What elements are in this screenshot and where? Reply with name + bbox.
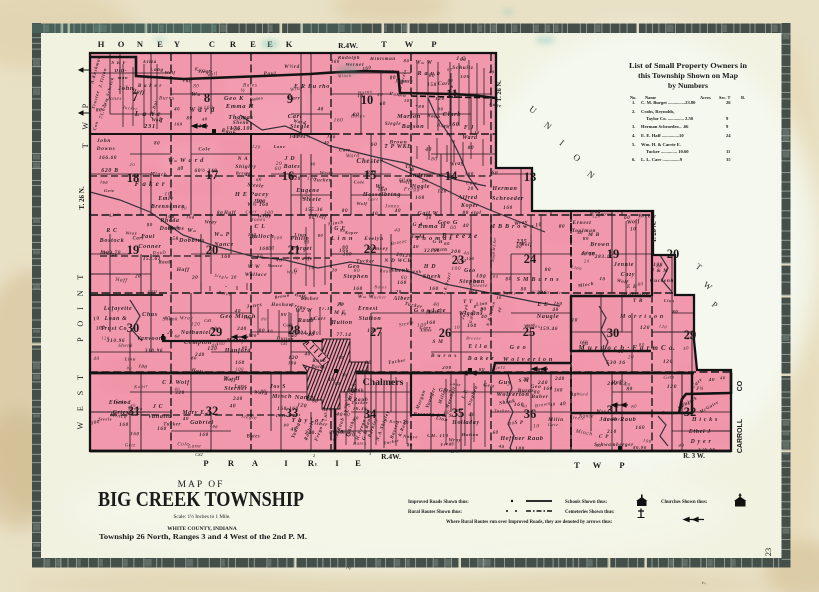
svg-text:40: 40	[462, 223, 470, 229]
svg-text:160 160: 160 160	[277, 406, 298, 412]
svg-text:Dill-: Dill-	[114, 69, 128, 74]
svg-text:180: 180	[515, 446, 525, 452]
svg-text:Carr: Carr	[245, 210, 257, 215]
svg-text:Ernest: Ernest	[572, 220, 592, 226]
svg-text:*80: *80	[415, 105, 424, 110]
svg-text:Mary E.A.: Mary E.A.	[181, 410, 213, 416]
svg-text:80: 80	[261, 317, 267, 322]
svg-text:T: T	[574, 460, 580, 470]
svg-text:23: 23	[763, 548, 773, 557]
svg-text:Raub: Raub	[167, 225, 180, 231]
svg-text:Burns: Burns	[159, 95, 175, 101]
svg-text:80: 80	[147, 75, 153, 80]
svg-text:160: 160	[244, 315, 253, 321]
svg-text:100: 100	[96, 325, 106, 332]
svg-text:Linn: Linn	[293, 233, 306, 238]
svg-text:120: 120	[595, 293, 604, 298]
svg-text:C#2: C#2	[195, 452, 203, 457]
svg-text:30: 30	[607, 326, 620, 340]
svg-text:N: N	[137, 39, 144, 49]
svg-text:80: 80	[193, 84, 199, 89]
svg-text:Y: Y	[174, 39, 180, 49]
svg-text:60: 60	[174, 333, 180, 338]
svg-text:Rudolph: Rudolph	[338, 56, 360, 61]
svg-text:Cole: Cole	[283, 323, 293, 328]
svg-text:Shigley: Shigley	[235, 164, 256, 170]
svg-text:60: 60	[242, 345, 248, 350]
svg-text:W o l v e r t o n: W o l v e r t o n	[503, 357, 553, 363]
svg-text:240.: 240.	[304, 430, 317, 436]
svg-text:Wallace: Wallace	[245, 272, 267, 278]
svg-text:80: 80	[211, 326, 217, 332]
svg-text:K: K	[286, 39, 293, 49]
svg-text:20: 20	[230, 275, 237, 280]
svg-text:231: 231	[143, 123, 156, 130]
svg-text:P: P	[619, 460, 624, 470]
svg-text:Jones: Jones	[395, 79, 410, 85]
svg-text:80: 80	[480, 307, 486, 312]
svg-text:10: 10	[474, 130, 480, 135]
svg-text:160: 160	[199, 432, 209, 438]
svg-text:this Township Shown on Map: this Township Shown on Map	[638, 71, 738, 80]
svg-text:10: 10	[181, 206, 187, 211]
svg-text:166.60: 166.60	[99, 155, 117, 161]
svg-text:40: 40	[412, 245, 419, 250]
svg-text:Statton: Statton	[359, 316, 382, 322]
svg-text:E. E. Haff ...............10: E. E. Haff ...............10	[641, 133, 684, 138]
svg-text:200: 200	[366, 170, 377, 176]
svg-text:Eugene: Eugene	[295, 188, 320, 194]
svg-text:80: 80	[281, 313, 287, 318]
svg-text:20: 20	[425, 215, 432, 220]
svg-text:Getz: Getz	[125, 444, 136, 449]
svg-text:283.16: 283.16	[594, 254, 613, 260]
svg-text:Tucker .............. 10.60: Tucker .............. 10.60	[646, 149, 689, 154]
svg-text:R: R	[228, 458, 235, 468]
svg-text:Getz: Getz	[104, 188, 114, 193]
svg-text:40: 40	[677, 444, 684, 449]
svg-text:80: 80	[284, 422, 290, 427]
svg-text:40: 40	[93, 356, 99, 362]
svg-text:120: 120	[191, 322, 201, 328]
svg-text:40: 40	[182, 417, 189, 422]
svg-text:20: 20	[336, 428, 344, 435]
svg-text:20: 20	[331, 267, 338, 272]
svg-text:Jones: Jones	[251, 218, 265, 223]
svg-text:Minch: Minch	[271, 394, 292, 400]
svg-text:Fregg: Fregg	[403, 187, 420, 193]
svg-text:Getz: Getz	[663, 375, 675, 381]
svg-text:120: 120	[454, 408, 462, 413]
svg-text:Wm W a r d: Wm W a r d	[168, 157, 204, 164]
svg-text:20: 20	[467, 187, 474, 192]
svg-text:Carr: Carr	[314, 316, 327, 322]
svg-text:160: 160	[554, 388, 563, 393]
svg-text:530 16: 530 16	[606, 360, 626, 366]
svg-text:6.: 6.	[632, 157, 635, 162]
svg-text:20: 20	[191, 275, 199, 281]
svg-text:160: 160	[353, 286, 363, 292]
svg-text:C#2: C#2	[582, 341, 589, 346]
svg-text:24: 24	[726, 133, 731, 138]
svg-text:80: 80	[404, 58, 410, 63]
svg-text:10: 10	[309, 265, 315, 270]
svg-text:10: 10	[328, 377, 334, 383]
svg-text:60: 60	[399, 177, 406, 184]
svg-text:C P: C P	[599, 434, 609, 440]
svg-text:Raub: Raub	[379, 268, 392, 273]
svg-text:160: 160	[468, 290, 478, 296]
svg-text:60: 60	[491, 170, 499, 177]
svg-text:Haff: Haff	[223, 210, 237, 216]
svg-text:Breeze: Breeze	[637, 213, 656, 219]
svg-text:T. 26 N.: T. 26 N.	[496, 80, 503, 102]
svg-text:Batson: Batson	[401, 123, 425, 130]
svg-text:80: 80	[339, 355, 345, 360]
svg-text:20: 20	[395, 291, 402, 296]
svg-text:P O I N T: P O I N T	[76, 270, 85, 342]
svg-text:R. 3 W.: R. 3 W.	[683, 452, 705, 460]
svg-text:40: 40	[304, 353, 311, 358]
svg-text:40: 40	[371, 211, 379, 217]
svg-text:Bates: Bates	[283, 164, 301, 170]
svg-text:10: 10	[353, 415, 359, 420]
svg-text:100: 100	[386, 69, 395, 74]
svg-text:E: E	[355, 458, 361, 468]
svg-text:B a k e r: B a k e r	[467, 356, 495, 362]
svg-text:60: 60	[379, 101, 386, 108]
svg-text:100: 100	[264, 211, 273, 216]
svg-text:C: C	[209, 39, 215, 49]
svg-text:H E Pacey: H E Pacey	[234, 191, 269, 198]
svg-text:Brennemen: Brennemen	[150, 204, 185, 210]
svg-text:Bostock: Bostock	[99, 238, 125, 244]
svg-text:160: 160	[174, 122, 183, 127]
svg-text:10: 10	[404, 98, 410, 103]
svg-text:80: 80	[493, 274, 499, 279]
svg-text:13: 13	[524, 170, 537, 184]
svg-text:Lane: Lane	[273, 144, 286, 149]
svg-text:Breeze: Breeze	[235, 171, 251, 176]
svg-text:Wm: Wm	[191, 91, 201, 98]
svg-text:Brown: Brown	[128, 406, 142, 411]
svg-text:80: 80	[154, 142, 160, 147]
svg-text:10: 10	[409, 167, 415, 172]
svg-text:24: 24	[524, 252, 537, 266]
svg-text:10: 10	[268, 328, 274, 333]
svg-text:160: 160	[130, 432, 139, 437]
svg-text:M o r r i s o n: M o r r i s o n	[619, 314, 664, 320]
svg-text:Clark: Clark	[443, 111, 462, 118]
svg-text:Loan &: Loan &	[104, 316, 128, 322]
svg-text:Raub: Raub	[312, 358, 326, 364]
svg-text:40: 40	[424, 147, 432, 154]
svg-text:100: 100	[343, 253, 352, 258]
svg-text:W: W	[405, 39, 414, 49]
svg-text:B r e e z e: B r e e z e	[441, 232, 478, 240]
svg-text:80: 80	[438, 107, 444, 112]
svg-text:Brown: Brown	[295, 331, 312, 337]
svg-text:S M: S M	[432, 339, 443, 345]
svg-text:160: 160	[429, 286, 439, 292]
svg-text:½ wife: ½ wife	[295, 255, 313, 262]
svg-text:Steele: Steele	[98, 416, 112, 421]
svg-text:E l l a: E l l a	[467, 344, 487, 350]
svg-text:40: 40	[201, 116, 208, 122]
svg-text:120: 120	[667, 384, 677, 390]
svg-text:Breeze: Breeze	[413, 412, 432, 418]
svg-text:Tucker: Tucker	[371, 294, 387, 299]
svg-text:Tucker: Tucker	[356, 258, 375, 264]
svg-text:Schools Shown thus:: Schools Shown thus:	[565, 500, 608, 505]
svg-text:10: 10	[342, 372, 348, 377]
svg-text:80: 80	[353, 112, 360, 118]
svg-text:Tucker: Tucker	[351, 400, 368, 405]
svg-text:80: 80	[342, 245, 349, 251]
svg-text:80: 80	[631, 404, 638, 410]
svg-text:R.4W.: R.4W.	[338, 41, 358, 50]
svg-text:C. M. Burget ...............23: C. M. Burget ...............23.80	[641, 100, 696, 105]
svg-text:120: 120	[301, 195, 310, 201]
svg-text:CARROLL: CARROLL	[737, 418, 744, 453]
svg-text:20: 20	[336, 303, 343, 308]
svg-text:man: man	[118, 75, 129, 80]
svg-text:160: 160	[119, 422, 129, 428]
svg-text:Chas: Chas	[142, 312, 158, 318]
svg-text:by Numbers: by Numbers	[668, 81, 708, 90]
svg-text:40: 40	[468, 412, 476, 418]
svg-text:W: W	[593, 460, 602, 470]
svg-text:Wray: Wray	[320, 171, 334, 177]
svg-text:80: 80	[468, 145, 475, 151]
svg-text:Shenk: Shenk	[118, 344, 133, 349]
svg-text:60½ 240: 60½ 240	[195, 167, 218, 174]
svg-text:Getz: Getz	[548, 422, 559, 427]
svg-text:Jos S: Jos S	[269, 384, 286, 390]
svg-text:Tucker: Tucker	[494, 408, 510, 413]
svg-text:Koper: Koper	[133, 383, 149, 389]
svg-text:B a k e r: B a k e r	[137, 83, 162, 89]
svg-text:20: 20	[451, 91, 458, 96]
svg-text:2.: 2.	[632, 109, 635, 114]
svg-text:160: 160	[543, 386, 553, 392]
svg-text:Wolf: Wolf	[287, 269, 298, 274]
svg-text:80: 80	[342, 208, 349, 214]
svg-text:Fregg: Fregg	[227, 126, 241, 131]
svg-text:80 etal: 80 etal	[463, 210, 482, 216]
svg-text:Schultz: Schultz	[452, 65, 474, 71]
svg-text:G A: G A	[413, 222, 424, 228]
svg-text:Hutton: Hutton	[330, 320, 352, 326]
svg-text:Naugle: Naugle	[536, 314, 559, 320]
svg-text:160: 160	[186, 214, 195, 220]
svg-text:100: 100	[653, 262, 663, 268]
svg-text:Linn: Linn	[663, 298, 675, 304]
svg-text:40: 40	[596, 444, 602, 449]
svg-text:Wolf: Wolf	[165, 70, 176, 75]
svg-text:Lafayette: Lafayette	[103, 306, 133, 312]
svg-text:Hutton: Hutton	[461, 432, 479, 437]
svg-text:80: 80	[191, 356, 197, 361]
svg-text:60: 60	[444, 410, 451, 417]
svg-text:Toolman: Toolman	[572, 228, 596, 234]
svg-text:P: P	[431, 39, 436, 49]
svg-text:158: 158	[427, 82, 437, 88]
svg-text:L a n e: L a n e	[134, 109, 162, 118]
svg-text:Ward: Ward	[346, 153, 360, 159]
svg-text:Linn: Linn	[124, 357, 136, 362]
svg-text:159.46: 159.46	[540, 326, 558, 332]
svg-text:40: 40	[488, 69, 495, 74]
svg-text:Vanatta: Vanatta	[148, 414, 172, 420]
svg-text:Bates: Bates	[243, 83, 258, 89]
svg-text:40: 40	[229, 403, 237, 409]
svg-text:160: 160	[465, 172, 474, 177]
svg-text:40: 40	[480, 314, 487, 320]
svg-text:R.4W.: R.4W.	[381, 452, 401, 461]
svg-text:Hoshaw: Hoshaw	[270, 302, 292, 308]
svg-text:1.: 1.	[632, 100, 635, 105]
svg-text:80: 80	[261, 389, 267, 394]
svg-text:80.90: 80.90	[633, 445, 647, 450]
svg-text:120: 120	[288, 355, 298, 361]
svg-text:F a k e r: F a k e r	[135, 180, 166, 188]
svg-text:T. 26 N.: T. 26 N.	[78, 186, 86, 209]
svg-text:Evelyn: Evelyn	[363, 236, 383, 242]
svg-text:80: 80	[516, 245, 522, 250]
svg-text:Shenk: Shenk	[407, 268, 422, 274]
svg-text:200: 200	[450, 249, 461, 255]
svg-text:Holladay: Holladay	[451, 420, 480, 426]
svg-text:20: 20	[584, 258, 590, 263]
svg-text:E E: E E	[536, 302, 548, 308]
svg-text:W E S T: W E S T	[76, 371, 85, 430]
svg-text:40: 40	[617, 349, 624, 355]
svg-text:Heffner Raub: Heffner Raub	[499, 436, 543, 442]
svg-text:E: E	[250, 39, 256, 49]
svg-text:Guckenh: Guckenh	[650, 278, 674, 284]
svg-text:Getz: Getz	[494, 366, 506, 372]
svg-text:M u r d o c h · F a r m C o.: M u r d o c h · F a r m C o.	[577, 344, 675, 352]
svg-text:C L Wolf: C L Wolf	[162, 380, 190, 386]
svg-text:80: 80	[583, 237, 589, 242]
svg-text:CH. 110: CH. 110	[427, 434, 448, 439]
svg-text:80: 80	[340, 227, 346, 233]
svg-text:40: 40	[323, 140, 330, 145]
svg-text:Haff: Haff	[114, 276, 129, 284]
svg-text:160: 160	[221, 254, 231, 260]
svg-text:158: 158	[169, 236, 179, 242]
svg-text:Chalmers: Chalmers	[363, 377, 404, 388]
svg-text:40: 40	[377, 93, 383, 98]
svg-text:155.36: 155.36	[305, 207, 323, 213]
svg-text:N A: N A	[237, 156, 249, 162]
svg-text:20: 20	[395, 252, 403, 259]
svg-text:120: 120	[291, 176, 301, 182]
svg-text:80: 80	[126, 365, 132, 371]
svg-text:10: 10	[496, 295, 502, 300]
svg-text:60: 60	[460, 58, 466, 63]
svg-text:8: 8	[204, 91, 210, 105]
svg-text:80: 80	[534, 390, 541, 396]
svg-text:40: 40	[173, 108, 180, 113]
svg-text:Wray: Wray	[126, 230, 138, 235]
svg-text:Lane: Lane	[187, 443, 201, 449]
svg-text:60: 60	[624, 215, 630, 221]
svg-text:Wm. H. & Carrie E.: Wm. H. & Carrie E.	[641, 142, 681, 147]
svg-text:Cole: Cole	[276, 413, 287, 418]
svg-text:120: 120	[640, 325, 650, 331]
svg-text:310.96: 310.96	[144, 348, 163, 354]
svg-text:160: 160	[377, 186, 387, 193]
svg-text:Carr: Carr	[289, 97, 301, 102]
svg-text:160: 160	[553, 301, 562, 307]
svg-text:T W P: T W P	[81, 98, 90, 148]
svg-text:Alfred: Alfred	[457, 195, 477, 201]
svg-text:80: 80	[639, 343, 645, 348]
svg-text:Carr: Carr	[368, 197, 379, 202]
svg-text:80: 80	[407, 443, 413, 448]
svg-text:J½: J½	[695, 385, 704, 392]
svg-text:80: 80	[637, 282, 644, 288]
svg-text:80: 80	[509, 420, 516, 426]
svg-text:10: 10	[535, 222, 543, 229]
svg-text:20: 20	[129, 162, 135, 167]
svg-text:20: 20	[628, 356, 634, 361]
svg-text:160: 160	[331, 60, 340, 65]
svg-text:10: 10	[335, 381, 341, 386]
svg-text:Tucker: Tucker	[604, 416, 621, 421]
svg-text:Bates: Bates	[246, 434, 261, 439]
svg-text:40: 40	[175, 386, 181, 391]
svg-text:100: 100	[256, 198, 266, 205]
svg-text:Haff: Haff	[176, 267, 191, 273]
svg-text:80: 80	[257, 254, 264, 260]
svg-text:Geo: Geo	[464, 268, 476, 274]
svg-text:T. 26 N.: T. 26 N.	[651, 221, 658, 243]
svg-text:Haff: Haff	[223, 377, 237, 384]
svg-text:160: 160	[235, 360, 245, 366]
svg-text:L i n n: L i n n	[330, 235, 353, 242]
svg-text:Wm W: Wm W	[415, 60, 432, 66]
svg-text:Wray: Wray	[180, 315, 194, 321]
svg-text:Bates: Bates	[662, 412, 676, 417]
svg-text:D y e r: D y e r	[690, 439, 712, 445]
svg-text:CO: CO	[737, 380, 744, 391]
svg-text:W½rd: W½rd	[284, 63, 300, 70]
svg-text:Koper: Koper	[531, 289, 546, 294]
svg-text:Nance: Nance	[402, 434, 418, 440]
svg-text:10: 10	[687, 335, 693, 340]
svg-text:120: 120	[663, 359, 673, 365]
svg-text:Herman: Herman	[491, 186, 517, 192]
svg-text:B u r n s: B u r n s	[430, 353, 457, 359]
svg-text:160: 160	[203, 105, 213, 111]
svg-text:40: 40	[157, 75, 164, 80]
svg-text:Raub: Raub	[678, 400, 691, 405]
svg-text:30: 30	[127, 321, 140, 335]
svg-text:T: T	[381, 39, 387, 49]
svg-text:Paul: Paul	[264, 71, 277, 77]
svg-text:200: 200	[441, 366, 451, 371]
svg-text:Dobbins: Dobbins	[178, 238, 205, 244]
svg-text:G H: G H	[433, 240, 444, 245]
svg-text:Shenk: Shenk	[233, 120, 249, 126]
svg-text:Nathaniel: Nathaniel	[180, 330, 211, 336]
svg-text:Judd: Judd	[410, 234, 425, 240]
svg-text:Bates: Bates	[428, 309, 441, 314]
svg-text:80: 80	[318, 233, 324, 238]
